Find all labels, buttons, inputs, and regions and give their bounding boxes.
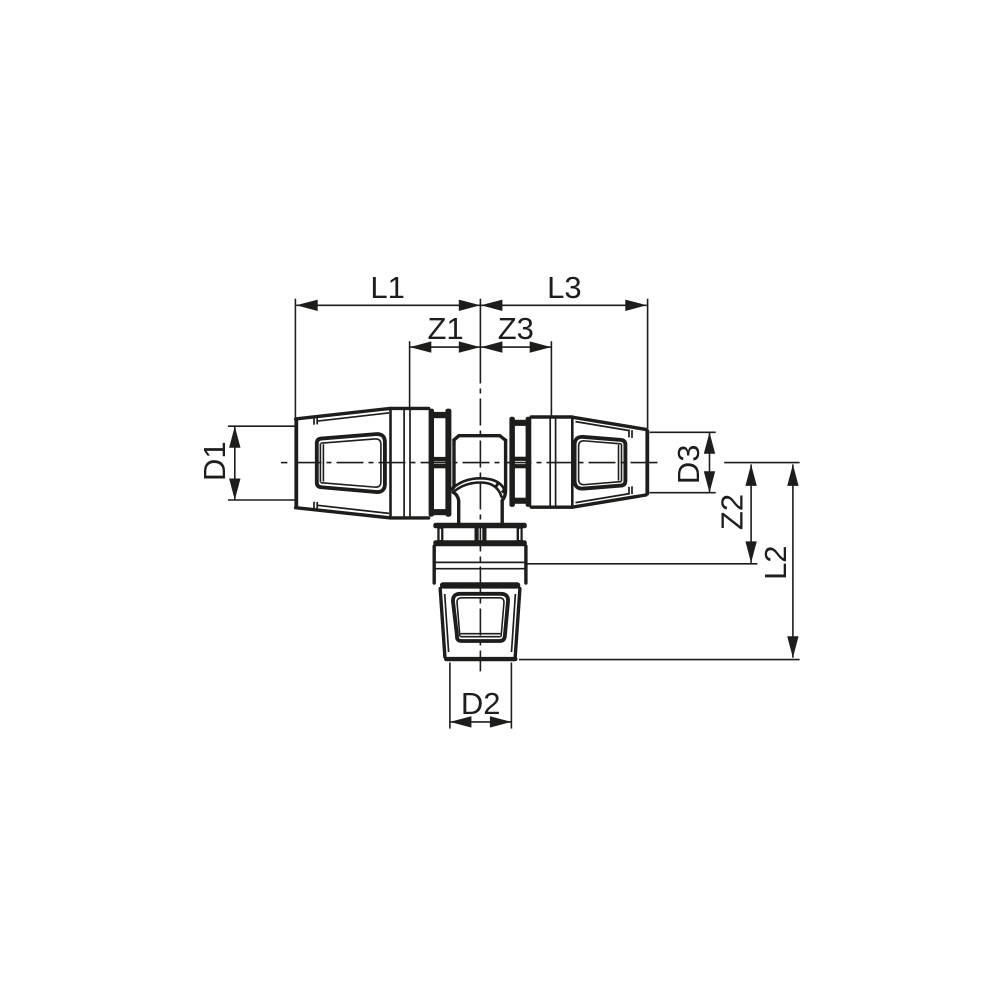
svg-text:L3: L3 (547, 270, 581, 305)
svg-text:L2: L2 (758, 545, 793, 579)
svg-text:D2: D2 (461, 686, 501, 721)
svg-text:D1: D1 (197, 441, 232, 481)
svg-text:Z2: Z2 (715, 494, 750, 530)
svg-text:L1: L1 (370, 270, 404, 305)
svg-text:D3: D3 (671, 444, 706, 484)
svg-text:Z3: Z3 (498, 311, 534, 346)
svg-text:Z1: Z1 (428, 311, 464, 346)
